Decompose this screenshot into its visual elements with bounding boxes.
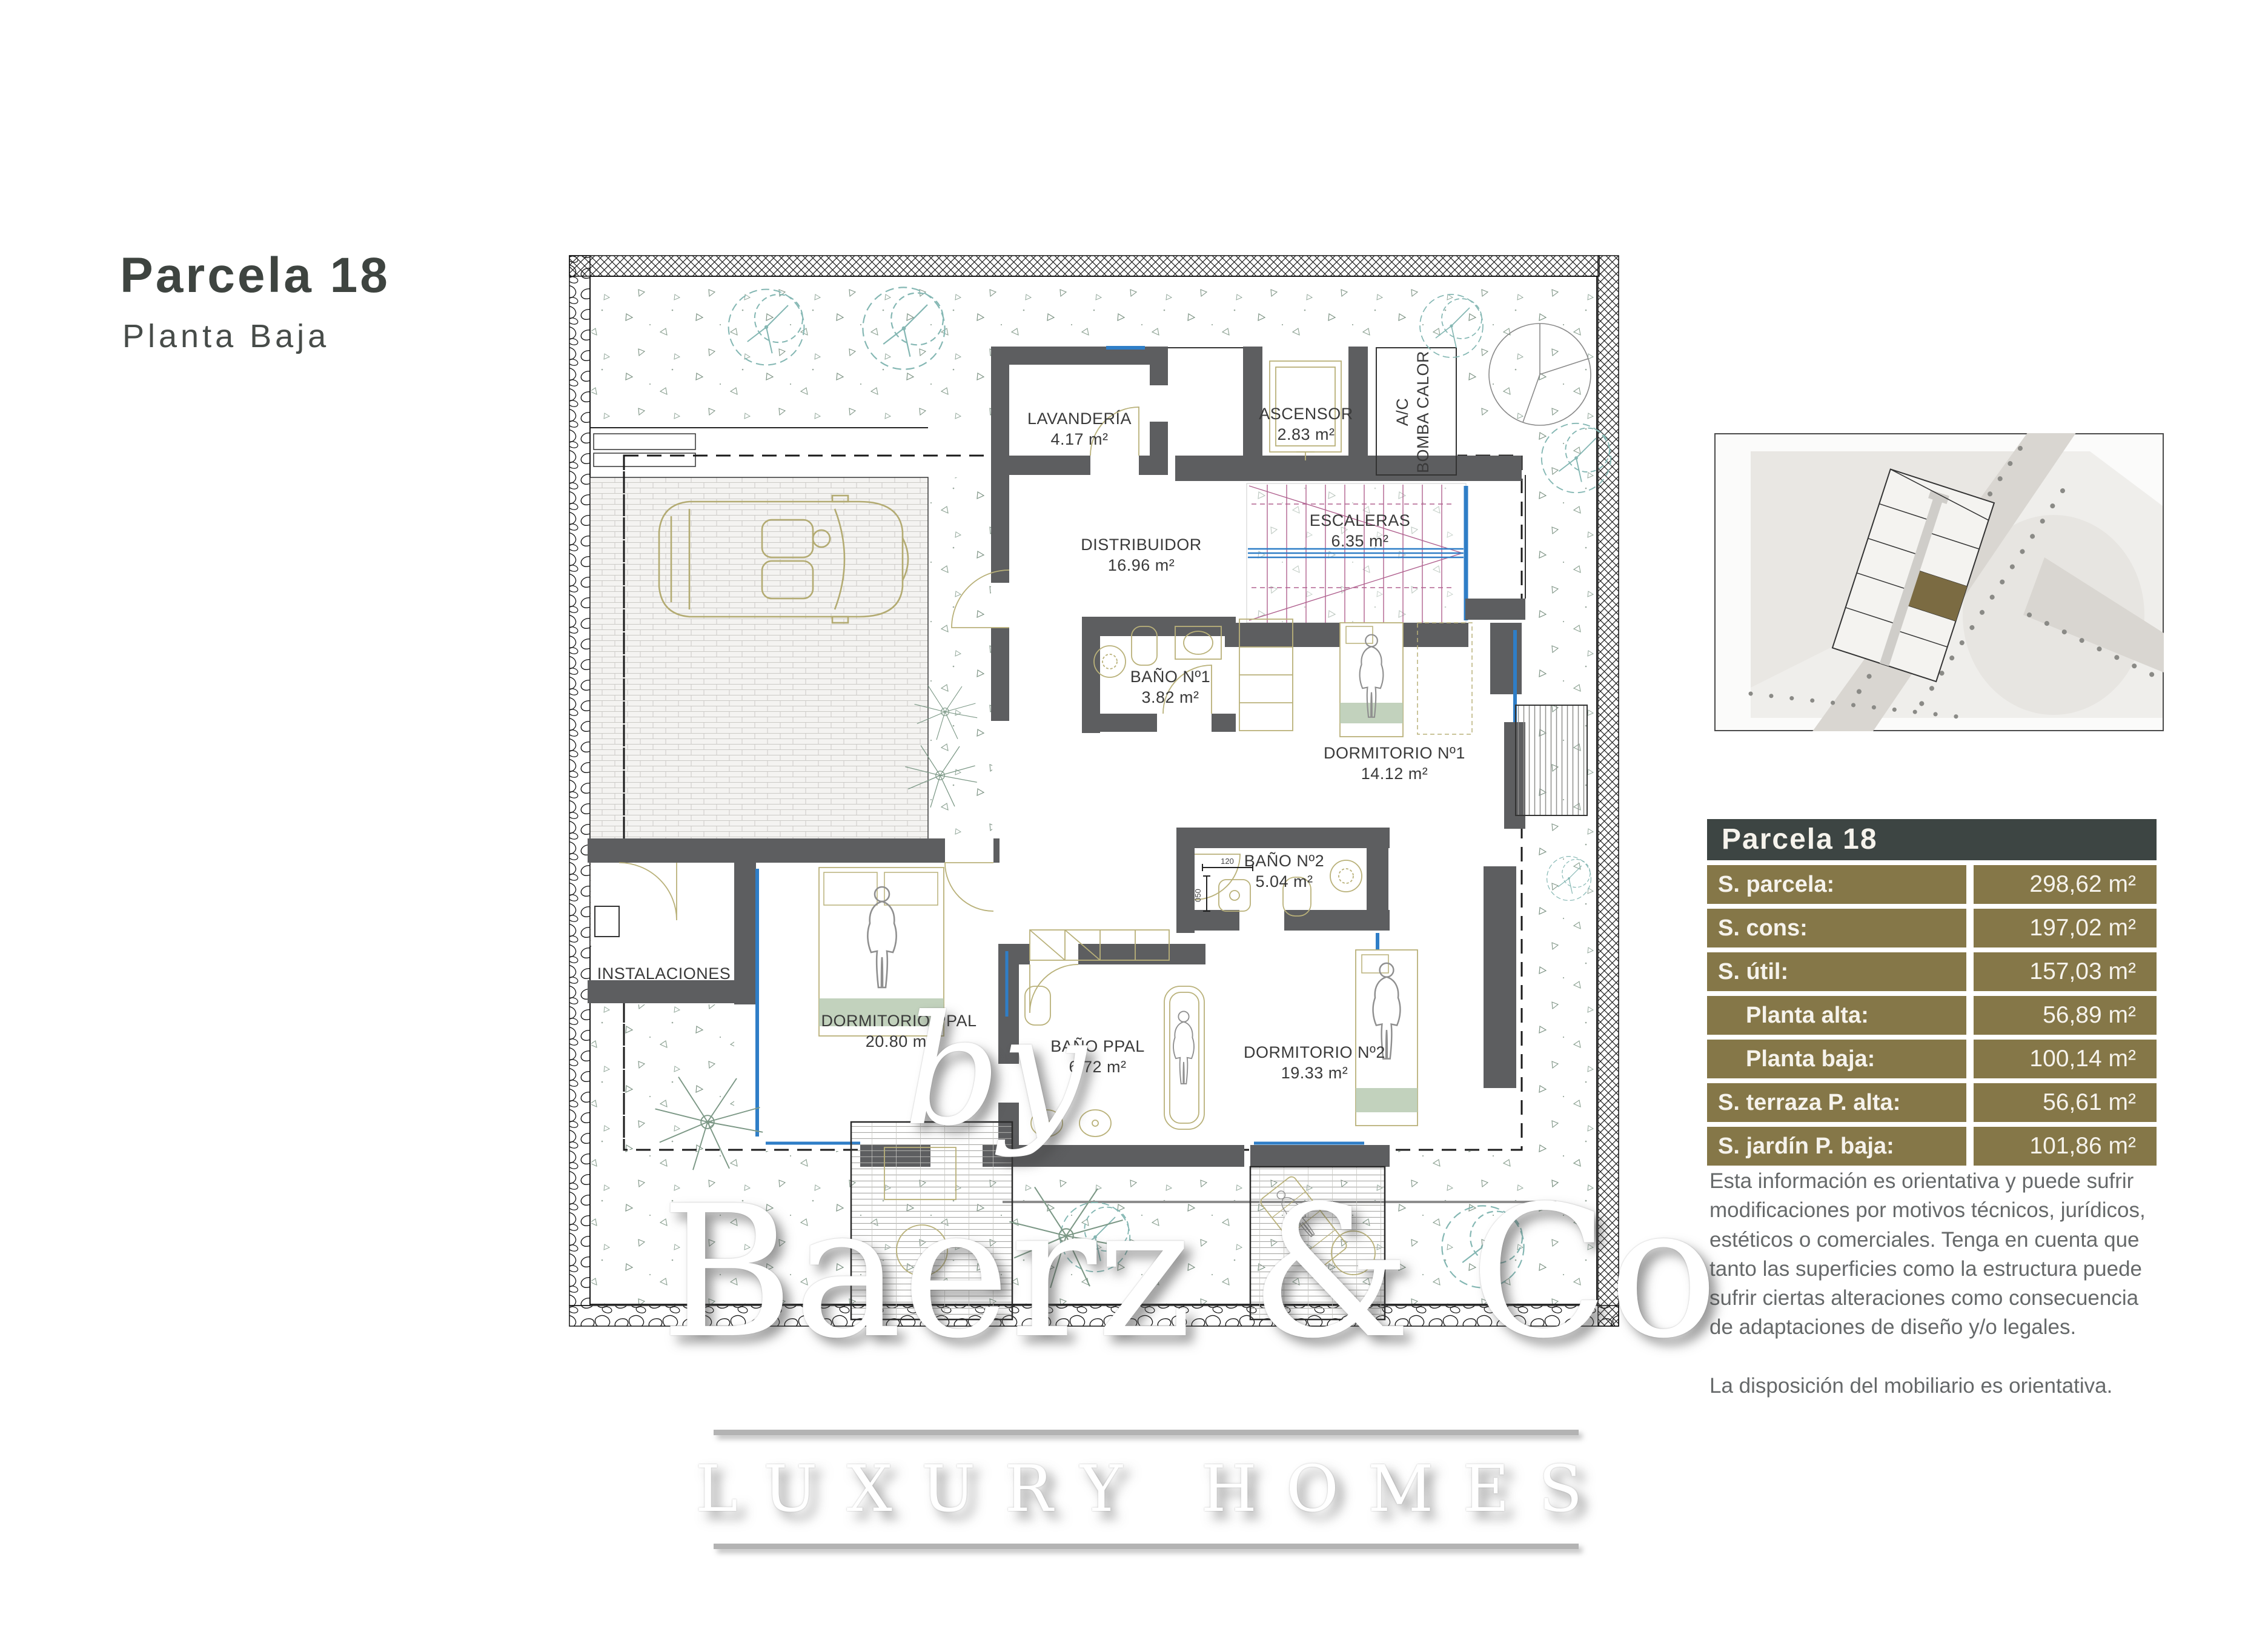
room-label-dormitorio-ppal: DORMITORIO PPAL <box>821 1012 976 1030</box>
room-label-ascensor: ASCENSOR <box>1259 405 1353 423</box>
page-subtitle: Planta Baja <box>122 317 330 355</box>
bed-dormitorio-ppal <box>819 868 944 1036</box>
summary-table: Parcela 18 S. parcela: 298,62 m² S. cons… <box>1707 819 2157 1170</box>
table-row: S. parcela: 298,62 m² <box>1707 865 2157 904</box>
stairs <box>1247 483 1466 623</box>
row-label: S. parcela: <box>1707 865 1966 904</box>
bed-dormitorio2 <box>1356 950 1417 1126</box>
room-area-distribuidor: 16.96 m² <box>1108 556 1175 574</box>
row-label: Planta alta: <box>1707 996 1966 1035</box>
table-row: S. cons: 197,02 m² <box>1707 909 2157 947</box>
room-area-dormitorio1: 14.12 m² <box>1361 765 1428 783</box>
disclaimer: Esta información es orientativa y puede … <box>1709 1167 2154 1430</box>
row-label: S. útil: <box>1707 952 1966 991</box>
floor-plan-svg: 120 050 <box>545 242 1636 1333</box>
deck-a <box>851 1122 1012 1319</box>
row-value: 101,86 m² <box>1974 1127 2157 1166</box>
row-value: 56,89 m² <box>1974 996 2157 1035</box>
room-area-lavanderia: 4.17 m² <box>1050 430 1108 448</box>
table-row: S. terraza P. alta: 56,61 m² <box>1707 1083 2157 1122</box>
dim-text: 120 <box>1221 857 1234 866</box>
disclaimer-paragraph-1: Esta información es orientativa y puede … <box>1709 1167 2154 1342</box>
row-value: 197,02 m² <box>1974 909 2157 947</box>
page-title: Parcela 18 <box>120 247 390 304</box>
watermark-divider-top <box>714 1430 1579 1435</box>
dim-text: 050 <box>1193 889 1202 902</box>
row-value: 157,03 m² <box>1974 952 2157 991</box>
row-value: 56,61 m² <box>1974 1083 2157 1122</box>
deck-b <box>1250 1167 1385 1319</box>
row-label: S. terraza P. alta: <box>1707 1083 1966 1122</box>
summary-table-header: Parcela 18 <box>1707 819 2157 860</box>
room-area-bano1: 3.82 m² <box>1141 688 1199 706</box>
brochure-page: Parcela 18 Planta Baja <box>0 0 2268 1646</box>
room-label-bano-ppal: BAÑO PPAL <box>1050 1037 1145 1055</box>
watermark-divider-bottom <box>714 1544 1579 1549</box>
room-label-instalaciones: INSTALACIONES <box>597 964 731 983</box>
room-area-escaleras: 6.35 m² <box>1331 532 1388 550</box>
room-area-dormitorio2: 19.33 m² <box>1281 1064 1348 1082</box>
room-label-bano2: BAÑO Nº2 <box>1244 851 1324 870</box>
table-row: Planta baja: 100,14 m² <box>1707 1040 2157 1078</box>
row-label: S. jardín P. baja: <box>1707 1127 1966 1166</box>
table-row: Planta alta: 56,89 m² <box>1707 996 2157 1035</box>
room-label-distribuidor: DISTRIBUIDOR <box>1081 536 1202 554</box>
table-row: S. útil: 157,03 m² <box>1707 952 2157 991</box>
row-label: Planta baja: <box>1707 1040 1966 1078</box>
row-value: 100,14 m² <box>1974 1040 2157 1078</box>
room-label-lavanderia: LAVANDERÍA <box>1027 410 1132 428</box>
room-area-ascensor: 2.83 m² <box>1277 425 1335 443</box>
room-label-dormitorio1: DORMITORIO Nº1 <box>1324 744 1465 762</box>
room-label-escaleras: ESCALERAS <box>1310 511 1411 529</box>
row-value: 298,62 m² <box>1974 865 2157 904</box>
room-label-bano1: BAÑO Nº1 <box>1130 667 1210 686</box>
row-label: S. cons: <box>1707 909 1966 947</box>
site-map <box>1714 433 2164 731</box>
room-label-ac-line1: A/C <box>1393 398 1411 426</box>
room-label-ac-line2: BOMBA CALOR <box>1414 351 1432 473</box>
watermark-tagline: LUXURY HOMES <box>660 1452 1617 1526</box>
room-area-bano-ppal: 6.72 m² <box>1069 1058 1126 1076</box>
room-label-dormitorio2: DORMITORIO Nº2 <box>1244 1043 1385 1061</box>
table-row: S. jardín P. baja: 101,86 m² <box>1707 1127 2157 1166</box>
floor-plan: 120 050 <box>545 242 1636 1333</box>
disclaimer-paragraph-2: La disposición del mobiliario es orienta… <box>1709 1372 2154 1401</box>
room-area-dormitorio-ppal: 20.80 m² <box>866 1032 933 1050</box>
room-area-bano2: 5.04 m² <box>1255 872 1313 891</box>
site-map-svg <box>1714 433 2164 731</box>
side-terrace <box>1516 705 1587 815</box>
